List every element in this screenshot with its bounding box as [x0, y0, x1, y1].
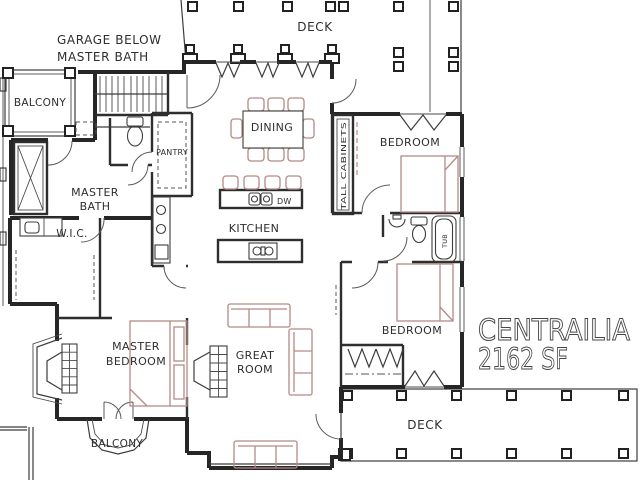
dining-deck-door	[332, 79, 356, 103]
shower-x	[18, 146, 43, 210]
deck-column	[326, 2, 335, 11]
deck-column	[452, 449, 461, 458]
toilet-bowl	[413, 226, 426, 243]
balcony-column	[65, 126, 75, 136]
bath-faucet	[393, 215, 401, 219]
bar-stool	[265, 176, 280, 189]
kitchen-label: KITCHEN	[229, 222, 279, 235]
garage-note-line1: GARAGE BELOW	[57, 33, 162, 47]
kitchen-sink-basin	[157, 225, 166, 234]
casement-window-zigzag	[296, 63, 319, 77]
hearth-grid-lines	[210, 346, 227, 397]
kitchen-sink-basin	[157, 206, 166, 215]
master-bedroom-label-line2: BEDROOM	[106, 355, 166, 368]
wic-label: W.I.C.	[56, 228, 87, 240]
dining-chair	[268, 98, 284, 111]
casement-window-zigzag	[405, 371, 444, 386]
dining-label: DINING	[251, 121, 293, 134]
balcony-lower-label: BALCONY	[91, 438, 143, 450]
deck-column	[507, 449, 516, 458]
deck-column	[619, 449, 628, 458]
toilet-tank	[127, 117, 143, 126]
floor-plan-svg: GARAGE BELOW MASTER BATH DECK BALCONY MA…	[0, 0, 640, 480]
closet-walls	[341, 345, 403, 385]
bath-sink	[389, 219, 405, 227]
great-room-label-line1: GREAT	[236, 349, 275, 362]
island-sink	[261, 193, 272, 205]
master-hall-door	[164, 266, 186, 288]
deck-column	[234, 2, 243, 11]
deck-column	[562, 391, 571, 400]
window-mullion	[317, 466, 324, 470]
balcony-column	[65, 68, 75, 78]
dining-chair	[231, 119, 242, 138]
sink-basin	[252, 196, 258, 202]
deck-column	[394, 62, 403, 71]
bath-door	[383, 237, 407, 261]
master-bedroom-label-line1: MASTER	[112, 340, 160, 353]
wall-oven	[155, 245, 168, 259]
casement-window-zigzag	[216, 63, 240, 77]
exterior-fragment	[0, 427, 33, 480]
deck-column	[507, 391, 516, 400]
window-seat-lines	[62, 344, 77, 393]
master-bath-label-line2: BATH	[80, 200, 111, 213]
deck-column	[619, 391, 628, 400]
deck-column	[339, 2, 348, 11]
window-mullion	[222, 466, 229, 470]
casement-window-zigzag	[256, 63, 279, 77]
upper-deck	[181, 0, 461, 112]
tub-label: TUB	[441, 234, 449, 249]
side-windows	[460, 147, 464, 332]
bay-opening	[47, 352, 62, 390]
deck-column	[449, 62, 458, 71]
burner	[253, 247, 261, 255]
deck-column	[449, 48, 458, 57]
deck-column	[283, 2, 292, 11]
fireplace-opening	[194, 352, 210, 390]
master-bay-window	[33, 334, 77, 404]
garage-note-line2: MASTER BATH	[57, 50, 149, 64]
pantry-door	[132, 152, 152, 172]
lower-deck	[339, 389, 637, 461]
kitchen-counter-west	[153, 197, 170, 263]
plan-area: 2162 SF	[478, 342, 568, 376]
window-mullion	[297, 466, 304, 470]
bed-upper-bedroom	[401, 156, 458, 212]
toilet-tank	[411, 217, 427, 225]
dining-chair	[288, 148, 304, 161]
casement-window-zigzag	[400, 115, 446, 130]
cooktop-controls	[261, 247, 265, 255]
deck-column	[394, 2, 403, 11]
deck-column	[343, 391, 352, 400]
deck-column	[394, 48, 403, 57]
wic-shelving-dashed	[16, 250, 94, 300]
sofa-top	[228, 304, 290, 327]
plan-title: CENTRAILIA 2162 SF	[478, 313, 630, 376]
bifold-closet-doors	[348, 349, 403, 367]
island-sink	[249, 193, 260, 205]
dining-chair	[268, 148, 284, 161]
deck-column	[449, 2, 458, 11]
deck-column	[452, 391, 461, 400]
powder-room-door	[128, 165, 148, 185]
sofa-chaise	[289, 329, 312, 395]
burner	[265, 247, 273, 255]
deck-column	[397, 391, 406, 400]
pantry-label: PANTRY	[156, 148, 188, 157]
sink-basin	[264, 196, 270, 202]
fireplace-bay	[194, 346, 227, 397]
deck-bottom-label: DECK	[407, 418, 443, 432]
bedroom-upper-label: BEDROOM	[380, 136, 440, 149]
bar-stool	[244, 176, 259, 189]
floor-plan-page: GARAGE BELOW MASTER BATH DECK BALCONY MA…	[0, 0, 640, 480]
deck-column	[186, 45, 194, 53]
greatroom-deck-door	[316, 414, 341, 439]
dishwasher-label: DW	[277, 197, 291, 206]
deck-top-label: DECK	[297, 20, 333, 34]
bedroom-upper-door	[362, 185, 390, 213]
dining-chair	[248, 98, 264, 111]
deck-column	[397, 449, 406, 458]
stairs	[76, 76, 168, 135]
balcony-column	[3, 126, 13, 136]
deck-column	[234, 45, 242, 53]
deck-outline	[341, 389, 637, 461]
deck-column	[328, 45, 336, 53]
master-bath-door	[48, 141, 72, 165]
bedroom-lower-door	[352, 262, 378, 288]
bedroom-lower-label: BEDROOM	[382, 324, 442, 337]
dining-chair	[303, 119, 314, 138]
foyer-door	[187, 75, 220, 108]
dining-chair	[248, 148, 264, 161]
deck-column	[562, 449, 571, 458]
bar-stool	[223, 176, 238, 189]
balcony-column	[3, 68, 13, 78]
master-bath-label-line1: MASTER	[71, 186, 119, 199]
bay-wall	[37, 338, 62, 400]
deck-column	[188, 2, 197, 11]
toilet-bowl	[128, 126, 143, 146]
bar-stool	[286, 176, 301, 189]
lower-left-walls	[0, 427, 33, 480]
tall-cabinets-label: TALL CABINETS	[340, 121, 348, 211]
deck-column	[281, 45, 289, 53]
dining-chair	[288, 98, 304, 111]
bed-lower-bedroom	[397, 264, 453, 321]
great-room-label-line2: ROOM	[237, 363, 273, 376]
balcony-upper-label: BALCONY	[14, 97, 66, 109]
